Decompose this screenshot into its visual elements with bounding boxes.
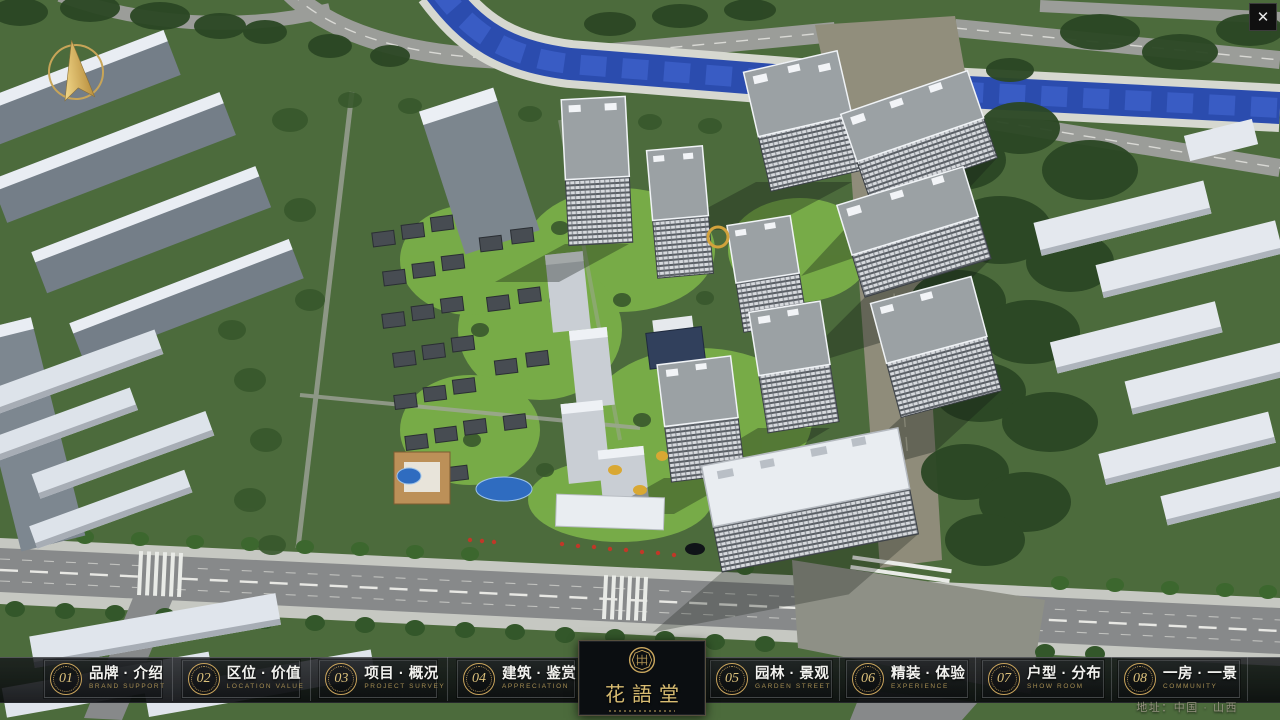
nav-title-zh: 园林 · 景观	[755, 667, 827, 682]
nav-title-zh: 建筑 · 鉴赏	[502, 667, 570, 682]
nav-title-en: COMMUNITY	[1163, 684, 1235, 691]
nav-item-unit-distribution[interactable]: 07 户型 · 分布 SHOW ROOM	[982, 660, 1104, 698]
brand-logo-panel[interactable]: 花語堂	[578, 640, 706, 716]
nav-item-architecture[interactable]: 04 建筑 · 鉴赏 APPRECIATION	[457, 660, 575, 698]
brand-seal-icon	[627, 645, 657, 675]
nav-title-en: LOCATION VALUE	[227, 684, 295, 691]
nav-title-zh: 户型 · 分布	[1027, 667, 1099, 682]
nav-item-room-view[interactable]: 08 一房 · 一景 COMMUNITY	[1118, 660, 1240, 698]
nav-item-project-survey[interactable]: 03 项目 · 概况 PROJECT SURVEY	[319, 660, 437, 698]
nav-separator	[1247, 657, 1248, 701]
nav-title-zh: 品牌 · 介绍	[89, 667, 157, 682]
nav-title-zh: 项目 · 概况	[364, 667, 432, 682]
nav-number-badge: 05	[716, 663, 748, 695]
nav-title-zh: 一房 · 一景	[1163, 667, 1235, 682]
nav-title-en: BRAND SUPPORT	[89, 684, 157, 691]
brand-name: 花語堂	[598, 678, 686, 707]
nav-item-garden-landscape[interactable]: 05 园林 · 景观 GARDEN STREET	[710, 660, 832, 698]
logo-subtext-line	[609, 710, 675, 712]
nav-number-badge: 01	[50, 663, 82, 695]
nav-number-badge: 07	[988, 663, 1020, 695]
close-button[interactable]: ✕	[1249, 3, 1277, 31]
masterplan-3d-scene[interactable]	[0, 0, 1280, 720]
nav-title-en: GARDEN STREET	[755, 684, 827, 691]
nav-item-location-value[interactable]: 02 区位 · 价值 LOCATION VALUE	[182, 660, 300, 698]
nav-title-en: PROJECT SURVEY	[364, 684, 432, 691]
nav-group-right: 05 园林 · 景观 GARDEN STREET 06 精装 · 体验 EXPE…	[710, 657, 1240, 701]
nav-number-badge: 08	[1124, 663, 1156, 695]
close-icon: ✕	[1257, 10, 1270, 25]
nav-title-en: SHOW ROOM	[1027, 684, 1099, 691]
project-address: 地址：中国 · 山西	[1136, 699, 1238, 715]
nav-title-en: APPRECIATION	[502, 684, 570, 691]
pond-small	[397, 468, 421, 484]
nav-number-badge: 06	[852, 663, 884, 695]
nav-number-badge: 02	[188, 663, 220, 695]
nav-title-zh: 区位 · 价值	[227, 667, 295, 682]
nav-number-badge: 04	[463, 663, 495, 695]
nav-title-en: EXPERIENCE	[891, 684, 963, 691]
nav-item-brand-intro[interactable]: 01 品牌 · 介绍 BRAND SUPPORT	[44, 660, 162, 698]
nav-number-badge: 03	[325, 663, 357, 695]
app-window: ✕ 01 品牌 · 介绍 BRAND SUPPORT 02 区位 · 价值 LO…	[0, 0, 1280, 720]
nav-item-decor-experience[interactable]: 06 精装 · 体验 EXPERIENCE	[846, 660, 968, 698]
nav-group-left: 01 品牌 · 介绍 BRAND SUPPORT 02 区位 · 价值 LOCA…	[44, 657, 575, 701]
swimming-pool	[476, 477, 532, 501]
nav-title-zh: 精装 · 体验	[891, 667, 963, 682]
